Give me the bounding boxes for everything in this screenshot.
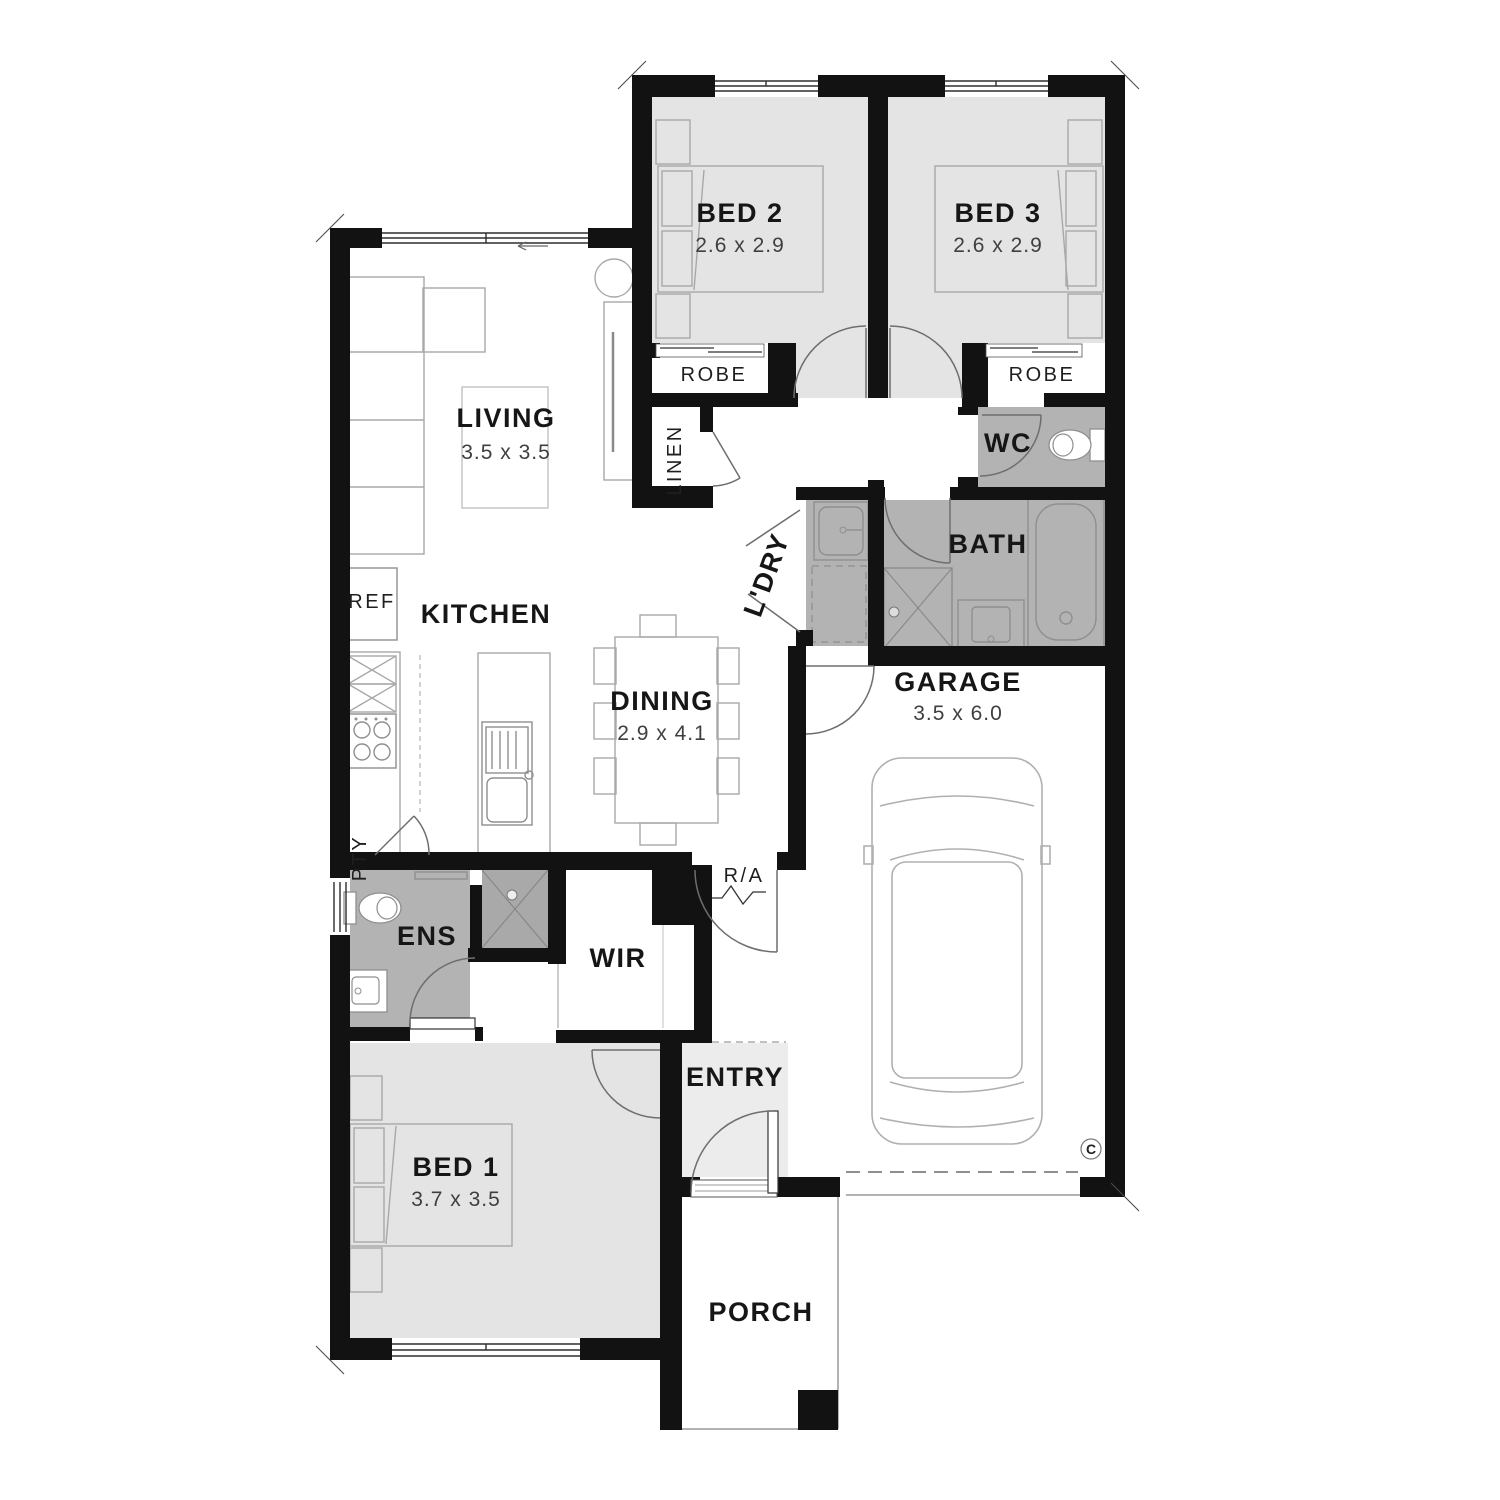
bed1-label: BED 1 [412,1152,499,1182]
living-window [382,233,588,250]
return-air-box [652,865,712,925]
bed2-dims: 2.6 x 2.9 [695,234,785,257]
dining-dims: 2.9 x 4.1 [617,722,707,745]
garage-internal-door [806,666,874,734]
porch-pillar [798,1390,838,1430]
return-air-pointer [712,886,766,904]
c-marker-label: C [1086,1141,1096,1157]
bed1-window [392,1344,580,1356]
floor-plan: BED 2 2.6 x 2.9 BED 3 2.6 x 2.9 ROBE ROB… [0,0,1500,1500]
fridge-label: REF [348,591,396,613]
bed2-window [715,81,818,91]
car [864,758,1050,1144]
linen-label: LINEN [664,424,686,495]
kitchen-label: KITCHEN [421,599,552,629]
ensuite-vanity [345,970,387,1012]
living-dims: 3.5 x 3.5 [461,441,551,464]
living-label: LIVING [456,403,555,433]
wc-toilet [1049,429,1105,461]
bed3-window [945,81,1048,91]
pantry-door [375,816,429,855]
kitchen-island [478,653,550,862]
cooktop [348,714,396,768]
entry-label: ENTRY [686,1062,784,1092]
bed2-label: BED 2 [696,198,783,228]
return-air-label: R/A [724,865,765,887]
laundry-label: L'DRY [738,529,796,620]
wc-label: WC [984,428,1032,458]
floor-plan-page: BED 2 2.6 x 2.9 BED 3 2.6 x 2.9 ROBE ROB… [0,0,1500,1500]
robe-left-label: ROBE [681,364,748,386]
room-floor-bed1 [350,1043,660,1338]
garage-dims: 3.5 x 6.0 [913,702,1003,725]
wir-label: WIR [590,943,647,973]
bed1-dims: 3.7 x 3.5 [411,1188,501,1211]
robe3-slider [986,344,1082,357]
ensuite-label: ENS [397,921,457,951]
pantry-label: PTY [349,835,371,881]
c-marker: C [1081,1139,1101,1159]
room-floor-laundry [806,500,868,646]
bed3-dims: 2.6 x 2.9 [953,234,1043,257]
robe-right-label: ROBE [1009,364,1076,386]
bed3-label: BED 3 [954,198,1041,228]
garage-label: GARAGE [894,667,1022,697]
ensuite-toilet [344,892,401,924]
dining-label: DINING [610,686,714,716]
room-floor-bath [884,500,1105,646]
porch-label: PORCH [708,1297,813,1327]
linen-door [713,432,740,486]
bath-label: BATH [949,529,1028,559]
robe2-slider [656,344,764,357]
side-table [595,259,633,297]
kitchen-bench [348,652,420,858]
